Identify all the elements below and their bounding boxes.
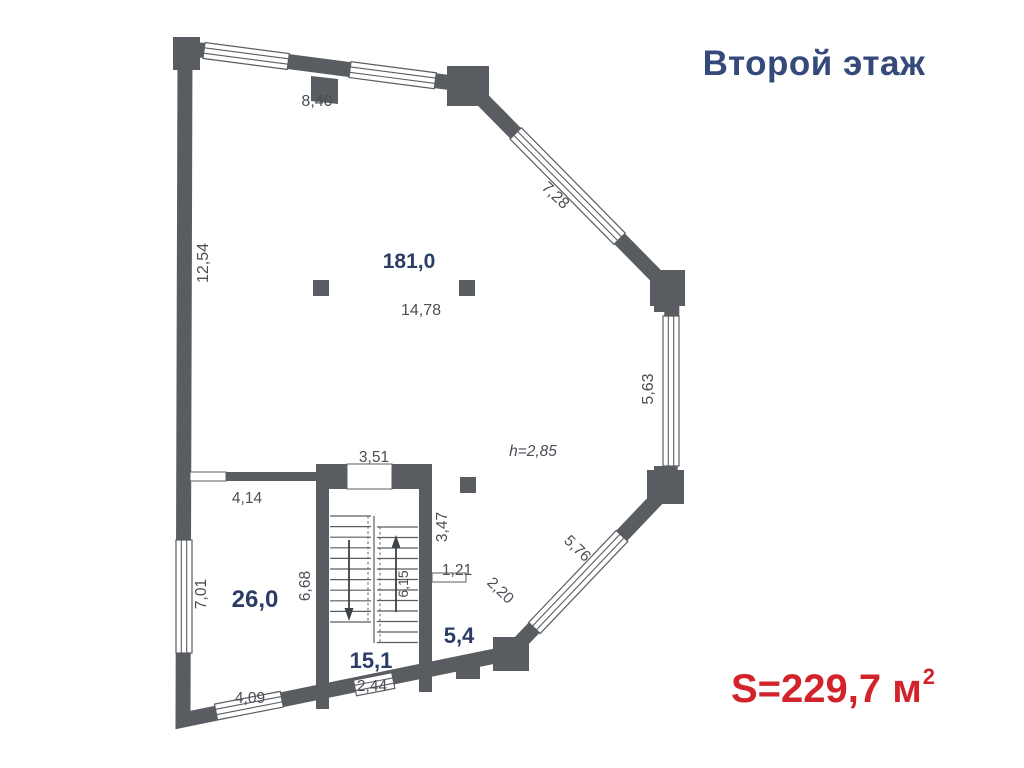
dim-ceiling-height: h=2,85: [509, 443, 557, 460]
columns: [313, 280, 476, 493]
dim-left-wall-lower: 7,01: [193, 579, 210, 609]
dim-stair-bottom-window: 2,44: [357, 678, 388, 695]
corner-bottom-right: [493, 637, 529, 671]
dim-top-wall: 8,40: [301, 93, 332, 110]
total-area: S=229,7 м2: [700, 664, 966, 712]
column-1: [313, 280, 329, 296]
stair-arrow-down: [345, 540, 354, 621]
door-opening-room26: [190, 472, 226, 481]
area-room-left: 26,0: [232, 586, 279, 613]
area-hall: 181,0: [383, 250, 436, 273]
dim-stair-top: 3,51: [359, 449, 389, 466]
stair-wall-right: [419, 464, 432, 692]
total-area-value: S=229,7 м: [731, 667, 922, 711]
dim-bottom-wall: 4,09: [235, 690, 265, 707]
window-left: [176, 540, 192, 653]
page-title: Второй этаж: [676, 44, 952, 84]
dim-right-wall: 5,63: [640, 373, 657, 404]
pilaster-right-window-bottom: [654, 466, 672, 481]
floor-plan-page: 8,40 7,28 12,54 14,78 5,63 h=2,85 3,51 4…: [0, 0, 1024, 768]
window-right: [663, 316, 679, 466]
partition-wall-room26: [226, 472, 318, 481]
pilaster-right-window-top: [654, 297, 672, 312]
corner-top-right: [447, 66, 489, 106]
dim-left-wall-upper: 12,54: [195, 243, 212, 283]
total-area-superscript: 2: [923, 664, 935, 689]
pilaster-entry-room: [456, 663, 480, 679]
column-3: [460, 477, 476, 493]
dim-stair-right: 3,47: [434, 512, 451, 542]
window-upper-diagonal: [510, 128, 625, 245]
column-2: [459, 280, 475, 296]
dim-hall-width: 14,78: [401, 302, 441, 319]
door-opening-stair: [347, 464, 392, 489]
corner-top-left: [173, 37, 200, 70]
dim-partition-door: 4,14: [232, 490, 263, 507]
area-entry: 5,4: [444, 623, 475, 648]
dim-stair-left: 6,68: [297, 571, 314, 601]
stair-treads-left-flight: [330, 516, 371, 622]
window-top-1: [203, 43, 289, 70]
dim-stair-flight: 6,15: [395, 570, 411, 597]
stair-wall-left: [316, 464, 329, 709]
window-top-2: [349, 62, 436, 89]
floor-plan-drawing: 8,40 7,28 12,54 14,78 5,63 h=2,85 3,51 4…: [0, 0, 1024, 768]
dim-small-room-diagonal: 2,20: [483, 574, 517, 607]
area-staircase: 15,1: [350, 648, 393, 673]
dim-small-door: 1,21: [442, 562, 472, 579]
